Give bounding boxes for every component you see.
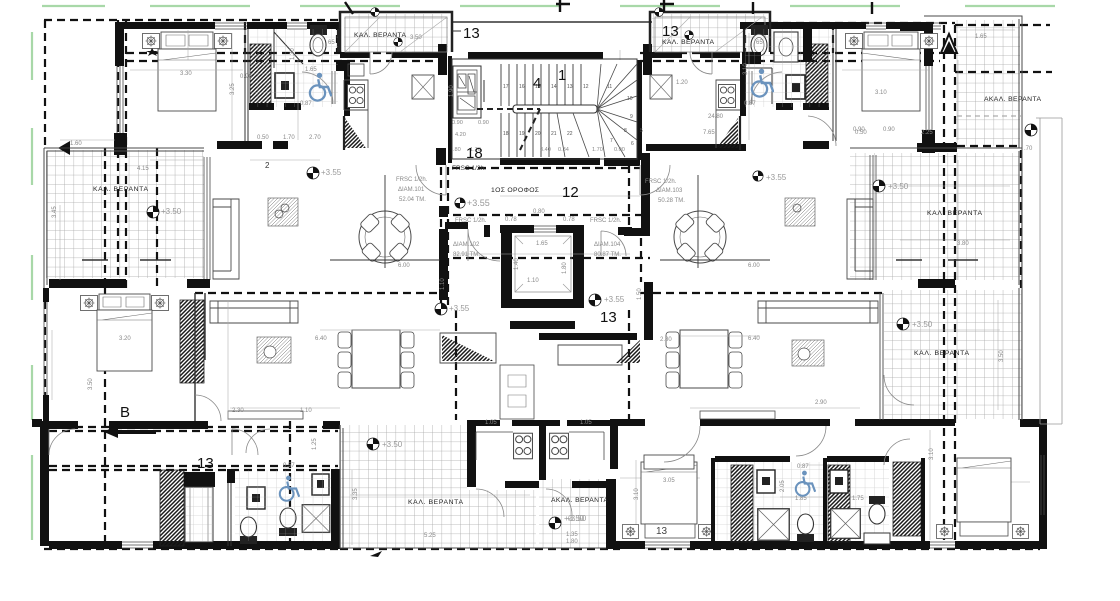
svg-text:0.78: 0.78 [563, 217, 575, 223]
svg-text:1ΟΣ ΟΡΟΦΟΣ: 1ΟΣ ΟΡΟΦΟΣ [491, 187, 539, 194]
svg-text:+3.55: +3.55 [467, 198, 490, 208]
svg-text:22: 22 [567, 131, 573, 137]
svg-text:0.87: 0.87 [797, 464, 809, 470]
svg-text:14: 14 [551, 84, 557, 90]
svg-text:17: 17 [503, 84, 509, 90]
svg-text:3.10: 3.10 [929, 448, 935, 460]
svg-text:16: 16 [519, 84, 525, 90]
svg-text:6.40: 6.40 [748, 336, 760, 342]
svg-text:ΚΑΛ. ΒΕΡΑΝΤΑ: ΚΑΛ. ΒΕΡΑΝΤΑ [914, 350, 969, 357]
svg-text:1.10: 1.10 [527, 278, 539, 284]
svg-text:18: 18 [503, 131, 509, 137]
svg-text:2.90: 2.90 [815, 400, 827, 406]
svg-text:1.05: 1.05 [485, 420, 497, 426]
svg-text:2.25: 2.25 [921, 130, 933, 136]
svg-text:+3.50: +3.50 [382, 440, 403, 449]
svg-text:4.15: 4.15 [137, 166, 149, 172]
svg-text:2.70: 2.70 [309, 135, 321, 141]
svg-text:82.91 ΤΜ.: 82.91 ΤΜ. [453, 252, 480, 258]
svg-text:1.35: 1.35 [566, 532, 578, 538]
svg-text:ΔΙΑΜ.103: ΔΙΑΜ.103 [656, 188, 683, 194]
svg-text:1.65: 1.65 [305, 67, 317, 73]
svg-text:ΚΑΛ. ΒΕΡΑΝΤΑ: ΚΑΛ. ΒΕΡΑΝΤΑ [354, 32, 406, 39]
svg-text:0.87: 0.87 [300, 101, 312, 107]
svg-text:1.20: 1.20 [676, 80, 688, 86]
svg-text:+3.55: +3.55 [604, 295, 625, 304]
svg-text:12: 12 [583, 84, 589, 90]
svg-text:FRSC 1/2h.: FRSC 1/2h. [645, 179, 677, 185]
svg-text:13: 13 [567, 84, 573, 90]
svg-text:1.10: 1.10 [300, 408, 312, 414]
svg-text:1.80: 1.80 [566, 539, 578, 545]
svg-text:5.25: 5.25 [424, 533, 436, 539]
svg-text:1.40: 1.40 [514, 258, 520, 270]
svg-text:3.50: 3.50 [88, 378, 94, 390]
svg-text:1.05: 1.05 [580, 420, 592, 426]
svg-text:9: 9 [630, 114, 633, 120]
svg-text:1.65: 1.65 [975, 34, 987, 40]
svg-text:3.50: 3.50 [410, 35, 422, 41]
svg-text:1.30: 1.30 [290, 48, 296, 60]
svg-text:0.90: 0.90 [240, 74, 252, 80]
svg-text:6.40: 6.40 [315, 336, 327, 342]
svg-text:13: 13 [197, 455, 214, 472]
svg-text:80.87 ΤΜ.: 80.87 ΤΜ. [594, 252, 621, 258]
svg-text:.70: .70 [1024, 146, 1033, 152]
svg-text:+3.50: +3.50 [566, 514, 587, 523]
svg-text:1.10: 1.10 [440, 278, 446, 290]
svg-text:1.50: 1.50 [637, 288, 643, 300]
svg-text:7.65: 7.65 [703, 130, 715, 136]
svg-text:7: 7 [610, 138, 613, 144]
svg-text:11: 11 [607, 84, 612, 90]
svg-text:ΑΚΑΛ. ΒΕΡΑΝΤΑ: ΑΚΑΛ. ΒΕΡΑΝΤΑ [984, 96, 1041, 103]
svg-text:0.90: 0.90 [478, 120, 489, 126]
svg-text:0.50: 0.50 [257, 135, 269, 141]
svg-text:3.20: 3.20 [119, 336, 131, 342]
svg-text:1.65: 1.65 [536, 241, 548, 247]
svg-text:ΔΙΑΜ.104: ΔΙΑΜ.104 [594, 242, 621, 248]
svg-text:1.85: 1.85 [795, 496, 807, 502]
svg-text:+3.55: +3.55 [321, 168, 342, 177]
svg-text:0.90: 0.90 [452, 120, 463, 126]
svg-text:4: 4 [533, 75, 541, 92]
svg-text:3.40: 3.40 [540, 147, 551, 153]
svg-text:24.80: 24.80 [708, 114, 724, 120]
svg-text:3.30: 3.30 [180, 71, 192, 77]
svg-text:+3.55: +3.55 [766, 173, 787, 182]
svg-text:2.05: 2.05 [780, 480, 786, 492]
svg-text:ΚΑΛ. ΒΕΡΑΝΤΑ: ΚΑΛ. ΒΕΡΑΝΤΑ [662, 39, 714, 46]
svg-text:13: 13 [656, 526, 668, 537]
svg-text:3.10: 3.10 [875, 90, 887, 96]
svg-text:ΚΑΛ. ΒΕΡΑΝΤΑ: ΚΑΛ. ΒΕΡΑΝΤΑ [927, 210, 982, 217]
svg-text:2: 2 [265, 161, 270, 170]
svg-text:3.10: 3.10 [743, 63, 749, 75]
svg-text:FRSC 1/2h.: FRSC 1/2h. [452, 165, 486, 172]
svg-text:0.00: 0.00 [614, 147, 625, 153]
svg-text:6: 6 [631, 141, 634, 147]
svg-text:21: 21 [551, 131, 557, 137]
svg-text:3.25: 3.25 [230, 83, 236, 95]
svg-text:ΑΚΑΛ. ΒΕΡΑΝΤΑ: ΑΚΑΛ. ΒΕΡΑΝΤΑ [551, 497, 608, 504]
svg-text:ΔΙΑΜ.101: ΔΙΑΜ.101 [398, 187, 425, 193]
svg-text:.80: .80 [453, 147, 461, 153]
svg-text:19: 19 [519, 131, 525, 137]
svg-text:1.70: 1.70 [592, 147, 603, 153]
svg-text:12: 12 [562, 184, 579, 201]
svg-text:13: 13 [600, 309, 617, 326]
svg-text:13: 13 [662, 23, 679, 40]
svg-text:3.45: 3.45 [52, 206, 58, 218]
svg-text:0.90: 0.90 [853, 127, 865, 133]
svg-text:1.80: 1.80 [562, 262, 568, 274]
svg-text:0.87: 0.87 [744, 101, 756, 107]
svg-text:65: 65 [756, 40, 763, 46]
svg-text:6.00: 6.00 [748, 263, 760, 269]
svg-text:1.75: 1.75 [852, 496, 864, 502]
svg-text:0.90: 0.90 [883, 127, 895, 133]
svg-text:1.70: 1.70 [283, 135, 295, 141]
svg-text:1.90: 1.90 [449, 85, 455, 97]
svg-text:1: 1 [558, 67, 566, 84]
svg-text:FRSC 1/2h.: FRSC 1/2h. [455, 218, 487, 224]
svg-text:ΔΙΑΜ.102: ΔΙΑΜ.102 [453, 242, 480, 248]
svg-text:FRSC 1/2h.: FRSC 1/2h. [396, 177, 428, 183]
svg-text:ΚΑΛ. ΒΕΡΑΝΤΑ: ΚΑΛ. ΒΕΡΑΝΤΑ [408, 499, 463, 506]
svg-text:0.78: 0.78 [505, 217, 517, 223]
svg-text:2.80: 2.80 [660, 337, 672, 343]
svg-text:13: 13 [463, 25, 480, 42]
svg-text:+3.50: +3.50 [161, 207, 182, 216]
svg-text:10: 10 [627, 96, 633, 102]
svg-text:3.50: 3.50 [999, 350, 1005, 362]
svg-text:+3.55: +3.55 [449, 304, 470, 313]
svg-text:+3.50: +3.50 [888, 182, 909, 191]
svg-text:3.10: 3.10 [634, 488, 640, 500]
svg-text:5: 5 [640, 128, 643, 134]
svg-text:2.30: 2.30 [232, 408, 244, 414]
svg-text:1.25: 1.25 [312, 438, 318, 450]
svg-text:+3.50: +3.50 [912, 320, 933, 329]
svg-text:0.80: 0.80 [533, 209, 545, 215]
svg-text:65: 65 [328, 40, 335, 46]
svg-text:18: 18 [466, 145, 483, 162]
svg-text:1.60: 1.60 [70, 141, 82, 147]
svg-text:FRSC 1/2h.: FRSC 1/2h. [590, 218, 622, 224]
svg-text:0.34: 0.34 [558, 147, 569, 153]
svg-text:3.05: 3.05 [663, 478, 675, 484]
svg-text:8: 8 [624, 128, 627, 134]
svg-text:3.80: 3.80 [957, 241, 969, 247]
svg-text:4.20: 4.20 [455, 132, 466, 138]
svg-text:B: B [120, 404, 130, 421]
svg-text:52.04 ΤΜ.: 52.04 ΤΜ. [399, 197, 426, 203]
svg-text:6.00: 6.00 [398, 263, 410, 269]
svg-text:3.35: 3.35 [353, 488, 359, 500]
svg-text:50.28 ΤΜ.: 50.28 ΤΜ. [658, 198, 685, 204]
svg-text:0.57: 0.57 [283, 463, 295, 469]
svg-text:20: 20 [535, 131, 541, 137]
svg-text:ΚΑΛ. ΒΕΡΑΝΤΑ: ΚΑΛ. ΒΕΡΑΝΤΑ [93, 186, 148, 193]
